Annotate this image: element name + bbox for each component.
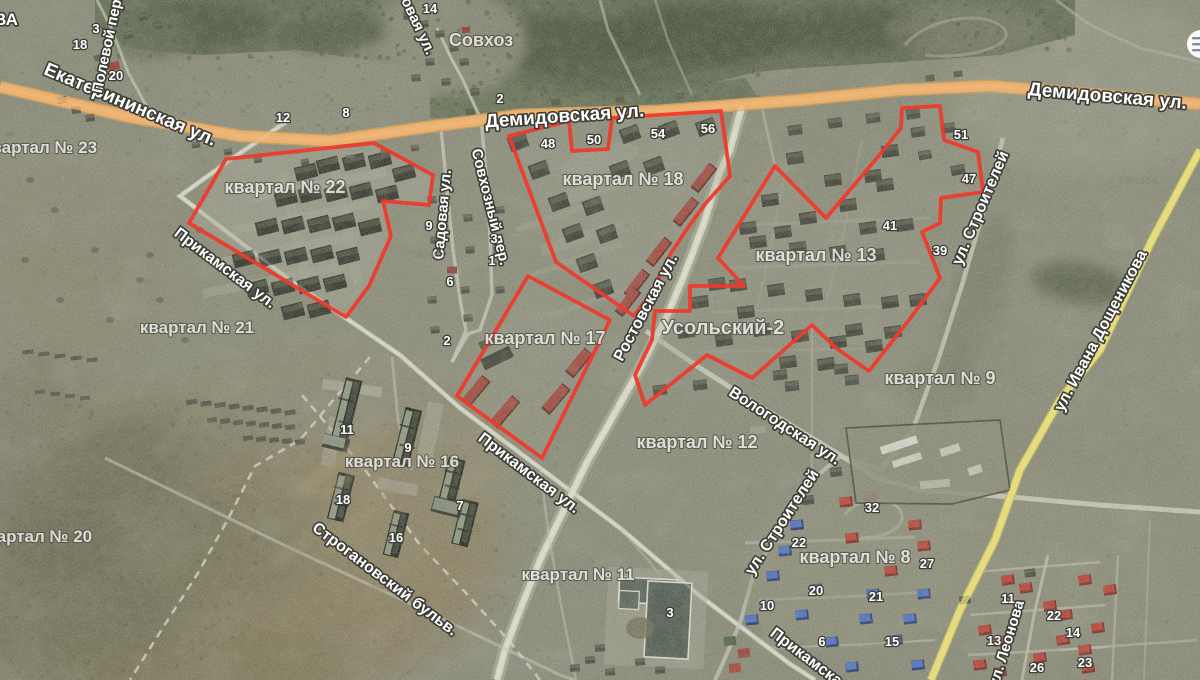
svg-text:Yandex: Yandex <box>1117 173 1157 187</box>
svg-text:9: 9 <box>425 218 432 233</box>
svg-text:3: 3 <box>92 21 99 36</box>
svg-text:квартал № 22: квартал № 22 <box>225 177 346 197</box>
svg-text:квартал № 11: квартал № 11 <box>521 565 634 584</box>
svg-text:квартал № 17: квартал № 17 <box>485 328 606 348</box>
svg-text:39: 39 <box>933 243 947 258</box>
svg-text:6: 6 <box>446 274 453 289</box>
svg-text:Совхоз: Совхоз <box>449 30 513 50</box>
svg-text:10: 10 <box>760 598 774 613</box>
svg-text:квартал № 9: квартал № 9 <box>885 368 996 388</box>
svg-text:15: 15 <box>885 634 899 649</box>
svg-text:квартал № 12: квартал № 12 <box>637 432 758 452</box>
svg-text:квартал № 21: квартал № 21 <box>140 318 254 337</box>
svg-text:22: 22 <box>792 535 806 550</box>
svg-text:2: 2 <box>443 333 450 348</box>
svg-text:41: 41 <box>883 218 897 233</box>
svg-text:18: 18 <box>73 37 87 52</box>
svg-text:16: 16 <box>389 530 403 545</box>
svg-text:20: 20 <box>809 583 823 598</box>
svg-text:26: 26 <box>1030 660 1044 675</box>
svg-text:23: 23 <box>1078 655 1092 670</box>
svg-text:квартал № 18: квартал № 18 <box>563 169 684 189</box>
svg-text:Yandex: Yandex <box>409 248 446 260</box>
svg-text:32: 32 <box>865 500 879 515</box>
svg-text:54: 54 <box>651 126 666 141</box>
svg-text:2: 2 <box>496 91 503 106</box>
svg-text:1: 1 <box>488 253 495 268</box>
svg-text:48: 48 <box>541 136 555 151</box>
svg-text:3: 3 <box>666 605 673 620</box>
svg-text:6: 6 <box>818 634 825 649</box>
svg-text:21: 21 <box>869 589 883 604</box>
svg-text:14: 14 <box>423 1 438 16</box>
svg-text:9: 9 <box>404 440 411 455</box>
svg-text:7: 7 <box>456 498 463 513</box>
svg-text:11: 11 <box>1001 591 1015 606</box>
svg-text:квартал № 20: квартал № 20 <box>0 527 92 546</box>
svg-text:50: 50 <box>587 132 601 147</box>
svg-text:ВА: ВА <box>0 10 18 29</box>
svg-text:12: 12 <box>276 110 290 125</box>
svg-text:3: 3 <box>490 231 497 246</box>
svg-text:8: 8 <box>342 105 349 120</box>
svg-text:квартал № 13: квартал № 13 <box>756 245 877 265</box>
svg-text:22: 22 <box>1047 608 1061 623</box>
svg-text:13: 13 <box>987 633 1001 648</box>
svg-text:27: 27 <box>920 556 934 571</box>
svg-text:18: 18 <box>336 492 350 507</box>
svg-text:47: 47 <box>962 171 976 186</box>
svg-text:квартал № 8: квартал № 8 <box>800 547 911 567</box>
svg-text:56: 56 <box>701 121 715 136</box>
svg-text:квартал № 23: квартал № 23 <box>0 138 97 157</box>
svg-text:11: 11 <box>340 422 354 437</box>
svg-text:51: 51 <box>954 127 968 142</box>
svg-text:14: 14 <box>1066 625 1081 640</box>
svg-text:Усольский-2: Усольский-2 <box>662 317 785 339</box>
svg-text:квартал № 16: квартал № 16 <box>345 452 459 471</box>
svg-text:20: 20 <box>109 68 123 83</box>
